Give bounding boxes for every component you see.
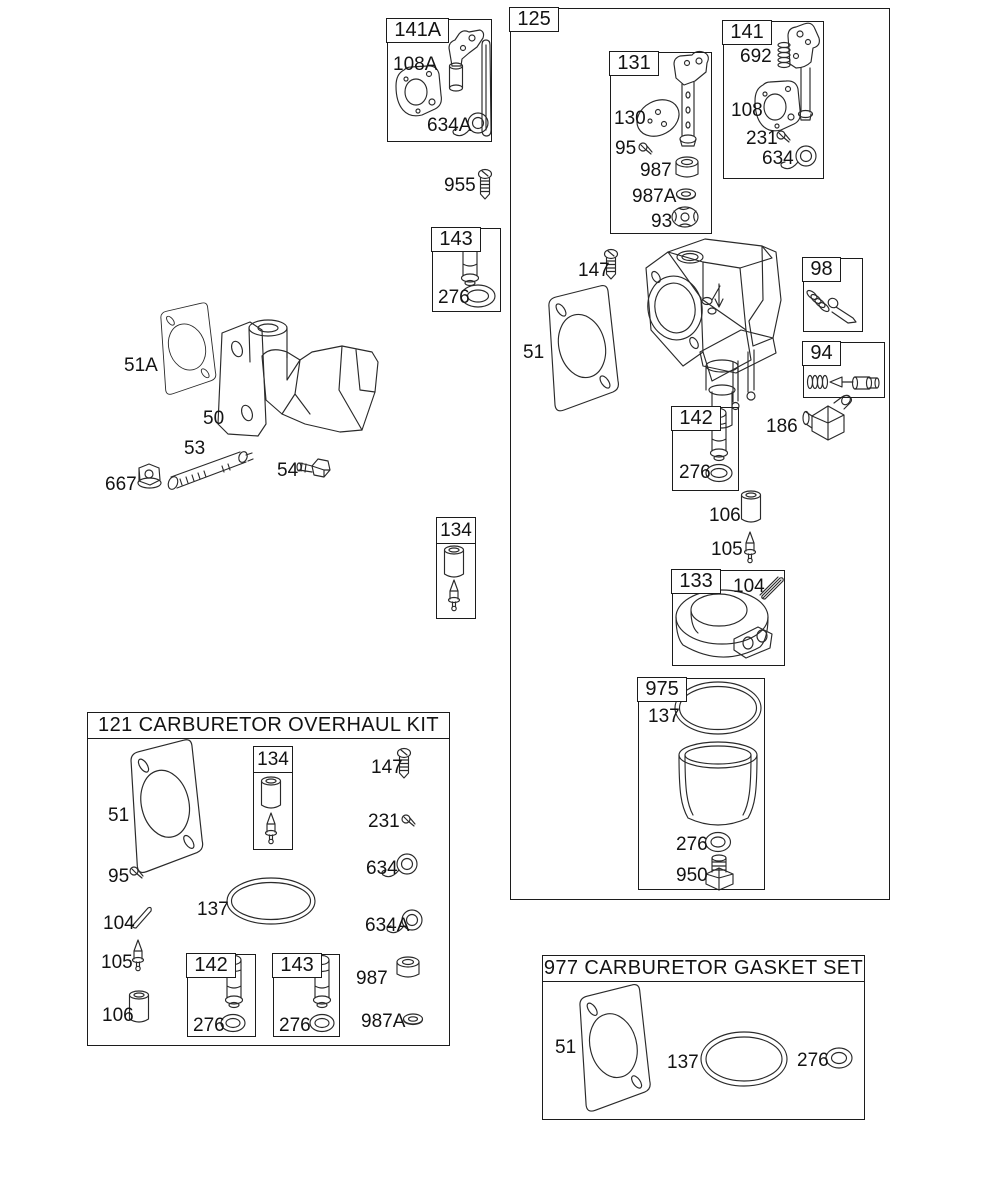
group-box-133-title: 133 <box>671 569 720 594</box>
intake-manifold-50-drawing <box>218 320 378 436</box>
part-label-51-kit: 51 <box>108 806 129 826</box>
part-label-93: 93 <box>651 212 672 232</box>
part-label-51-125: 51 <box>523 343 544 363</box>
part-label-231-141: 231 <box>746 129 778 149</box>
part-label-950: 950 <box>676 866 708 886</box>
group-box-143-kit-title: 143 <box>272 953 321 978</box>
part-label-276-143kit: 276 <box>279 1016 311 1036</box>
stud-53-drawing <box>167 450 253 490</box>
part-label-276-143top: 276 <box>438 288 470 308</box>
part-label-130: 130 <box>614 109 646 129</box>
group-box-94-title: 94 <box>802 341 840 366</box>
part-label-634A-top: 634A <box>427 116 471 136</box>
part-label-987A-kit: 987A <box>361 1012 405 1032</box>
nut-667-drawing <box>138 464 161 488</box>
group-box-141A-title: 141A <box>386 18 449 43</box>
part-label-276-set: 276 <box>797 1051 829 1071</box>
parts-diagram: 141A 143 125 131 141 98 94 142 133 975 1… <box>0 0 1000 1200</box>
part-label-276-142: 276 <box>679 463 711 483</box>
part-label-634A-kit: 634A <box>365 916 409 936</box>
part-label-137-set: 137 <box>667 1053 699 1073</box>
group-box-142-kit-title: 142 <box>186 953 235 978</box>
part-label-51A: 51A <box>124 356 158 376</box>
group-box-gasket-set: 977 CARBURETOR GASKET SET <box>542 955 865 1120</box>
screw-54-drawing <box>297 459 330 477</box>
part-label-106-kit: 106 <box>102 1006 134 1026</box>
part-label-51-set: 51 <box>555 1038 576 1058</box>
group-box-134-mid-title: 134 <box>437 518 475 544</box>
part-label-137-kit: 137 <box>197 900 229 920</box>
part-label-106-125: 106 <box>709 506 741 526</box>
part-label-634-kit: 634 <box>366 859 398 879</box>
part-label-108A: 108A <box>393 55 437 75</box>
part-label-137-975: 137 <box>648 707 680 727</box>
part-label-276-975: 276 <box>676 835 708 855</box>
part-label-104-133: 104 <box>733 577 765 597</box>
part-label-147-kit: 147 <box>371 758 403 778</box>
part-label-105-125: 105 <box>711 540 743 560</box>
part-label-987-131: 987 <box>640 161 672 181</box>
part-label-987-kit: 987 <box>356 969 388 989</box>
group-box-141-title: 141 <box>722 20 771 45</box>
group-box-98-title: 98 <box>802 257 840 282</box>
part-label-276-142kit: 276 <box>193 1016 225 1036</box>
group-box-134-kit-title: 134 <box>254 747 292 773</box>
group-box-134-kit: 134 <box>253 746 293 850</box>
part-label-108: 108 <box>731 101 763 121</box>
part-label-54: 54 <box>277 461 298 481</box>
group-box-133: 133 <box>672 570 785 666</box>
group-box-142-title: 142 <box>671 406 720 431</box>
part-label-50: 50 <box>203 409 224 429</box>
gasket-set-title: 977 CARBURETOR GASKET SET <box>543 956 864 982</box>
part-label-53: 53 <box>184 439 205 459</box>
group-box-94: 94 <box>803 342 885 398</box>
part-label-147-125: 147 <box>578 261 610 281</box>
group-box-975-title: 975 <box>637 677 686 702</box>
part-label-667: 667 <box>105 475 137 495</box>
part-label-987A-131: 987A <box>632 187 676 207</box>
group-box-134-mid: 134 <box>436 517 476 619</box>
part-label-634-141: 634 <box>762 149 794 169</box>
part-label-231-kit: 231 <box>368 812 400 832</box>
part-label-186: 186 <box>766 417 798 437</box>
part-label-692: 692 <box>740 47 772 67</box>
gasket-51A-drawing <box>161 303 216 394</box>
part-label-105-kit: 105 <box>101 953 133 973</box>
part-label-104-kit: 104 <box>103 914 135 934</box>
part-label-955: 955 <box>444 176 476 196</box>
part-label-95-kit: 95 <box>108 867 129 887</box>
group-box-131-title: 131 <box>609 51 658 76</box>
group-box-143-top-title: 143 <box>431 227 480 252</box>
screw-955-drawing <box>479 170 492 200</box>
overhaul-kit-title: 121 CARBURETOR OVERHAUL KIT <box>88 713 449 739</box>
group-box-125-title: 125 <box>509 7 558 32</box>
group-box-98: 98 <box>803 258 863 332</box>
part-label-95-131: 95 <box>615 139 636 159</box>
